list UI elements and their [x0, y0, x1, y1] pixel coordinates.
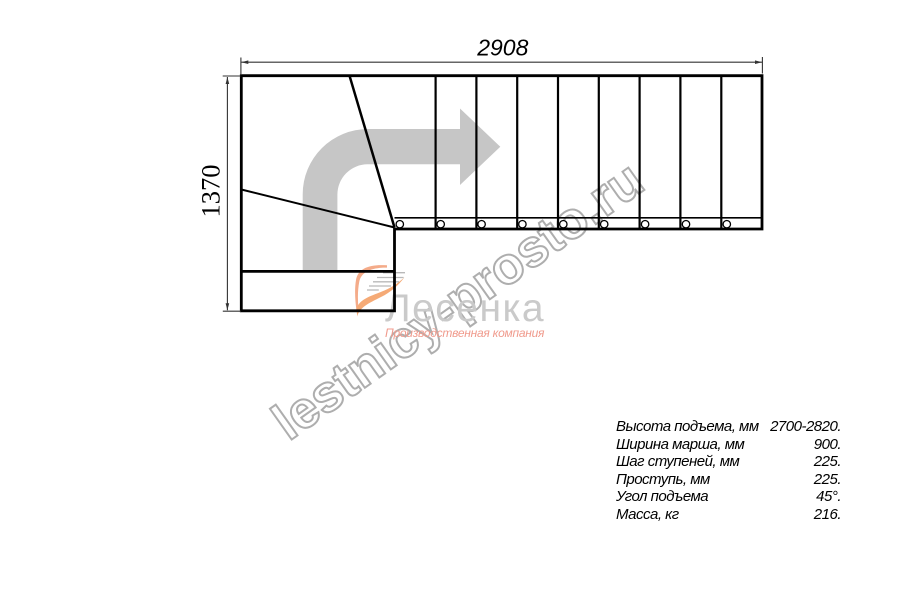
svg-text:1370: 1370 — [196, 165, 226, 218]
svg-text:2908: 2908 — [476, 34, 528, 60]
